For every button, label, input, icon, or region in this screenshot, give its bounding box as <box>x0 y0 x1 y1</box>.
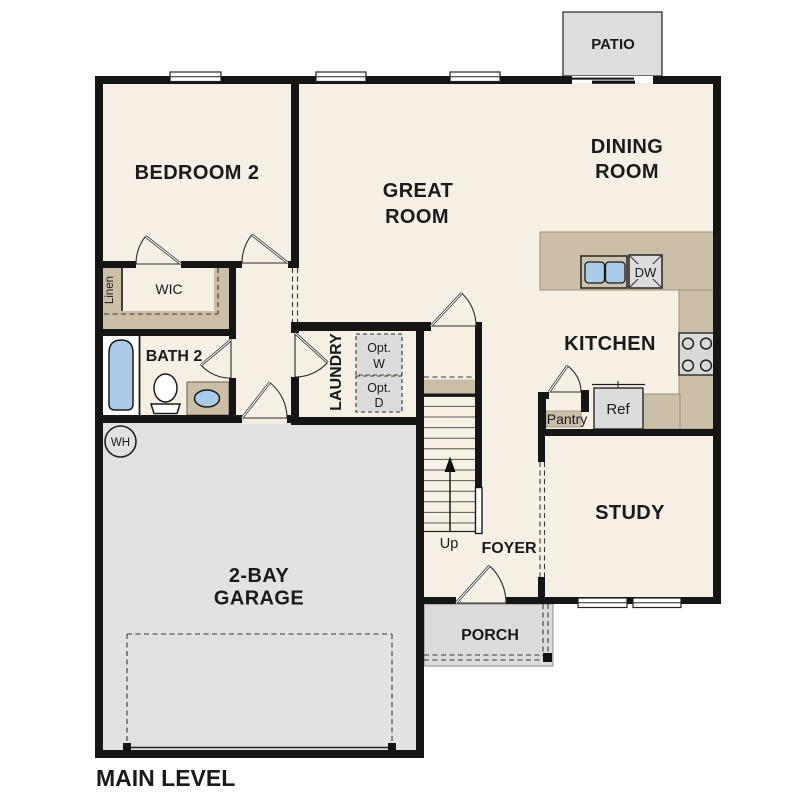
svg-text:KITCHEN: KITCHEN <box>564 333 656 355</box>
svg-text:STUDY: STUDY <box>595 502 665 524</box>
svg-text:ROOM: ROOM <box>385 206 449 228</box>
svg-text:Linen: Linen <box>104 276 116 304</box>
svg-text:Up: Up <box>440 536 459 552</box>
svg-text:Opt.: Opt. <box>367 341 391 355</box>
svg-text:MAIN LEVEL: MAIN LEVEL <box>96 765 235 791</box>
svg-text:WH: WH <box>111 437 130 449</box>
svg-text:GARAGE: GARAGE <box>214 588 304 610</box>
svg-text:GREAT: GREAT <box>383 180 454 202</box>
svg-text:Opt.: Opt. <box>367 381 391 395</box>
svg-text:BATH 2: BATH 2 <box>146 348 203 365</box>
svg-text:PATIO: PATIO <box>591 36 635 53</box>
svg-text:DINING: DINING <box>591 136 663 158</box>
svg-text:PORCH: PORCH <box>461 627 519 644</box>
svg-text:WIC: WIC <box>155 281 182 297</box>
svg-text:FOYER: FOYER <box>481 540 537 557</box>
svg-text:2-BAY: 2-BAY <box>229 565 289 587</box>
svg-text:LAUNDRY: LAUNDRY <box>328 333 345 411</box>
svg-text:ROOM: ROOM <box>595 161 659 183</box>
svg-text:DW: DW <box>635 265 657 280</box>
svg-text:W: W <box>373 357 385 371</box>
svg-text:BEDROOM 2: BEDROOM 2 <box>135 162 260 184</box>
svg-text:D: D <box>374 396 383 410</box>
svg-text:Pantry: Pantry <box>547 411 587 427</box>
svg-text:Ref: Ref <box>606 401 630 418</box>
